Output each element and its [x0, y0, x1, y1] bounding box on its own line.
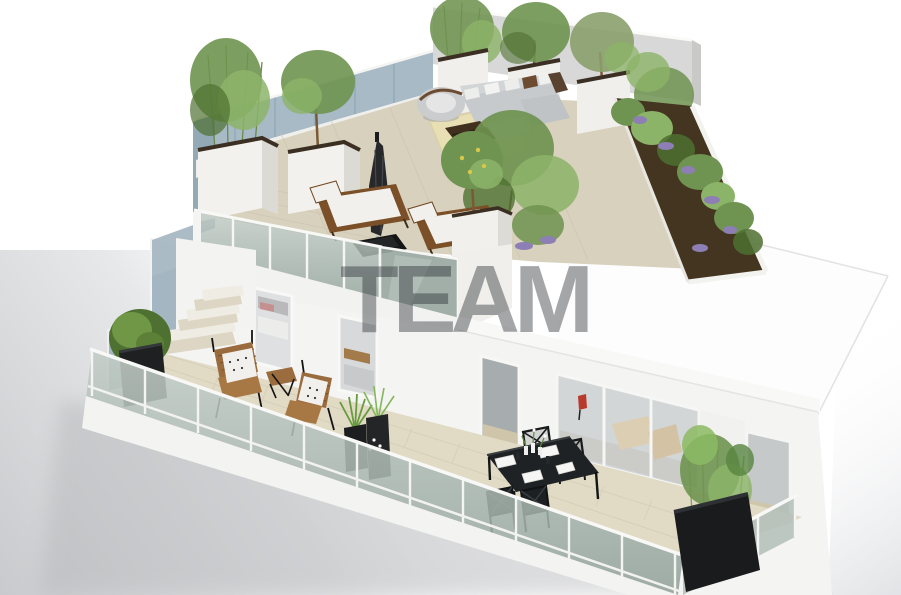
window-1: [254, 288, 292, 372]
render-canvas: TEAM: [0, 0, 901, 595]
bamboo-corner-planter: [674, 425, 760, 592]
architectural-3d-render: TEAM: [0, 0, 901, 595]
watermark-text: TEAM: [340, 246, 588, 353]
round-lounge-chair: [417, 87, 465, 122]
interior-red-chair: [578, 394, 587, 410]
